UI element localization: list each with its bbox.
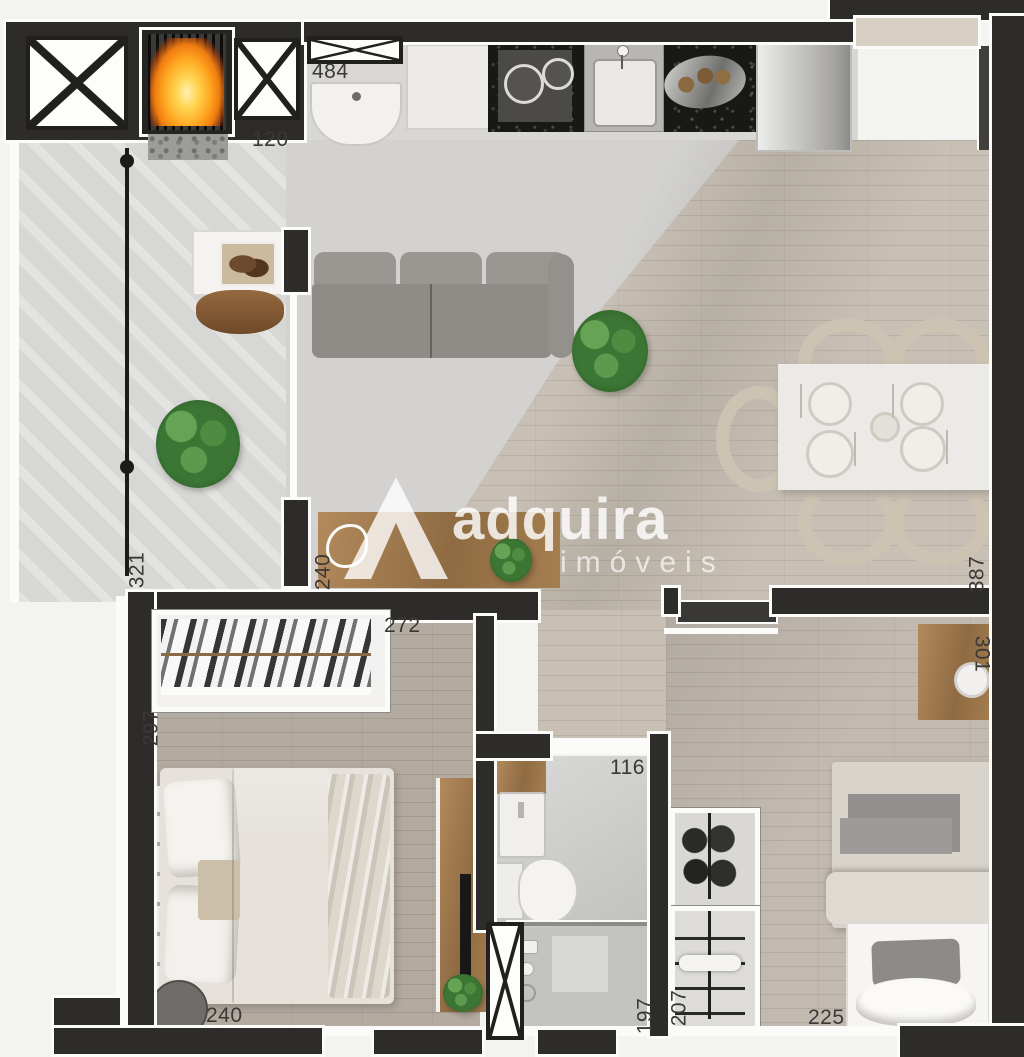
burner-icon	[542, 58, 574, 90]
fireplace-grill	[142, 30, 232, 134]
light-clothes	[679, 955, 741, 971]
cutlery-icon	[892, 384, 894, 418]
bedroom1-left-wall	[128, 592, 154, 1038]
sofa-armrest	[548, 254, 574, 358]
closet-upper	[670, 808, 760, 914]
plate-icon	[808, 382, 852, 426]
sink-basin	[593, 59, 657, 127]
dimension-label-207: 207	[668, 976, 690, 1040]
elevator-shaft-icon	[26, 36, 128, 130]
vanity-counter	[496, 760, 546, 794]
dimension-label-272: 272	[384, 614, 421, 638]
sheet-folds	[328, 774, 390, 998]
closet-rod	[161, 653, 371, 656]
fruit	[715, 68, 732, 85]
railing-post	[120, 460, 134, 474]
bottom-wall-c	[538, 1030, 616, 1054]
wardrobe-bedroom1	[152, 610, 390, 712]
living-plant	[572, 310, 648, 392]
dimension-label-116: 116	[610, 756, 645, 780]
kitchen-cabinet	[406, 44, 492, 130]
washer-knob	[352, 92, 361, 101]
dimension-label-387: 387	[966, 542, 988, 606]
plate-icon	[900, 382, 944, 426]
duct-shaft-icon	[234, 38, 300, 120]
kitchen-sink	[584, 42, 664, 132]
balcony-desk	[192, 230, 296, 296]
dimension-label-301: 301	[970, 622, 992, 686]
shower-tray	[552, 936, 608, 992]
faucet-icon	[617, 45, 629, 57]
burner-icon	[504, 64, 544, 104]
refrigerator	[756, 42, 852, 152]
center-bowl-icon	[870, 412, 900, 442]
dimension-label-225: 225	[808, 1006, 845, 1030]
bed1	[160, 768, 394, 1004]
closet-divider	[708, 813, 711, 899]
bottom-wall-a	[54, 1028, 322, 1054]
desk-artwork	[220, 242, 276, 286]
shower-glass-partition	[506, 920, 654, 926]
entry-threshold	[856, 18, 978, 46]
railing-post	[120, 154, 134, 168]
dimension-label-120: 120	[252, 128, 289, 152]
bathroom-top-wall	[476, 734, 550, 758]
balcony-glass-railing	[125, 148, 129, 576]
dimension-label-321: 321	[126, 538, 148, 602]
dresser-plant	[443, 974, 483, 1012]
plate-icon	[900, 426, 946, 472]
bed2-white-pillow	[856, 978, 976, 1026]
balcony-wall-upper	[284, 230, 308, 292]
sofa-seat	[312, 284, 552, 358]
bedroom1-bathroom-wall	[476, 616, 494, 930]
toilet	[494, 858, 576, 920]
tv-icon	[460, 874, 471, 978]
bedroom2-door-leaf	[676, 600, 778, 624]
vanity-sink	[498, 792, 546, 858]
living-bedroom-wall-right2	[772, 588, 994, 614]
floor-plan: 484 120 321 240 387 272 297 116 301 240 …	[0, 0, 1024, 1057]
toilet-bowl	[518, 858, 578, 924]
dimension-label-240: 240	[206, 1004, 243, 1028]
balcony-sliding-door	[290, 295, 297, 497]
cooktop	[498, 50, 572, 122]
fire-icon	[150, 38, 224, 126]
balcony-plant	[156, 400, 240, 488]
plate-icon	[806, 430, 854, 478]
closet-front	[161, 687, 371, 695]
sofa	[312, 252, 574, 360]
bottom-wall-b	[374, 1030, 482, 1054]
hallway-floor	[538, 600, 666, 750]
dimension-label-240v: 240	[312, 540, 334, 604]
sideboard-plant	[490, 538, 532, 582]
fruit	[677, 76, 695, 94]
bathroom-door-opening	[552, 738, 648, 754]
balcony-floor	[18, 140, 286, 602]
balcony-wall-lower	[284, 500, 308, 586]
fireplace-hearth	[148, 134, 228, 160]
duvet	[232, 768, 332, 1004]
right-outer-wall	[992, 16, 1024, 1057]
sink-tap-icon	[518, 802, 524, 818]
living-bedroom-wall-right	[664, 588, 678, 614]
cutlery-icon	[800, 384, 802, 418]
faucet-stem	[621, 55, 623, 69]
balcony-chair	[196, 290, 284, 334]
bed2-mattress	[846, 922, 990, 1034]
dimension-label-484: 484	[312, 60, 349, 84]
bathroom-shaft-icon	[486, 922, 524, 1040]
cutlery-icon	[854, 432, 856, 466]
blanket-gray-band2	[840, 818, 952, 854]
bottom-right-corner	[900, 1026, 1024, 1057]
dining-table	[778, 364, 994, 490]
dining-chair	[798, 478, 898, 566]
cutlery-icon	[946, 430, 948, 464]
bed2-blanket	[832, 762, 992, 928]
tv-sideboard	[318, 512, 560, 588]
dimension-label-297: 297	[140, 696, 162, 760]
blanket-fold	[826, 872, 998, 924]
door-track	[664, 628, 778, 634]
balcony-outer-edge	[10, 140, 19, 602]
dimension-label-197: 197	[634, 984, 656, 1048]
fruit	[696, 67, 714, 85]
